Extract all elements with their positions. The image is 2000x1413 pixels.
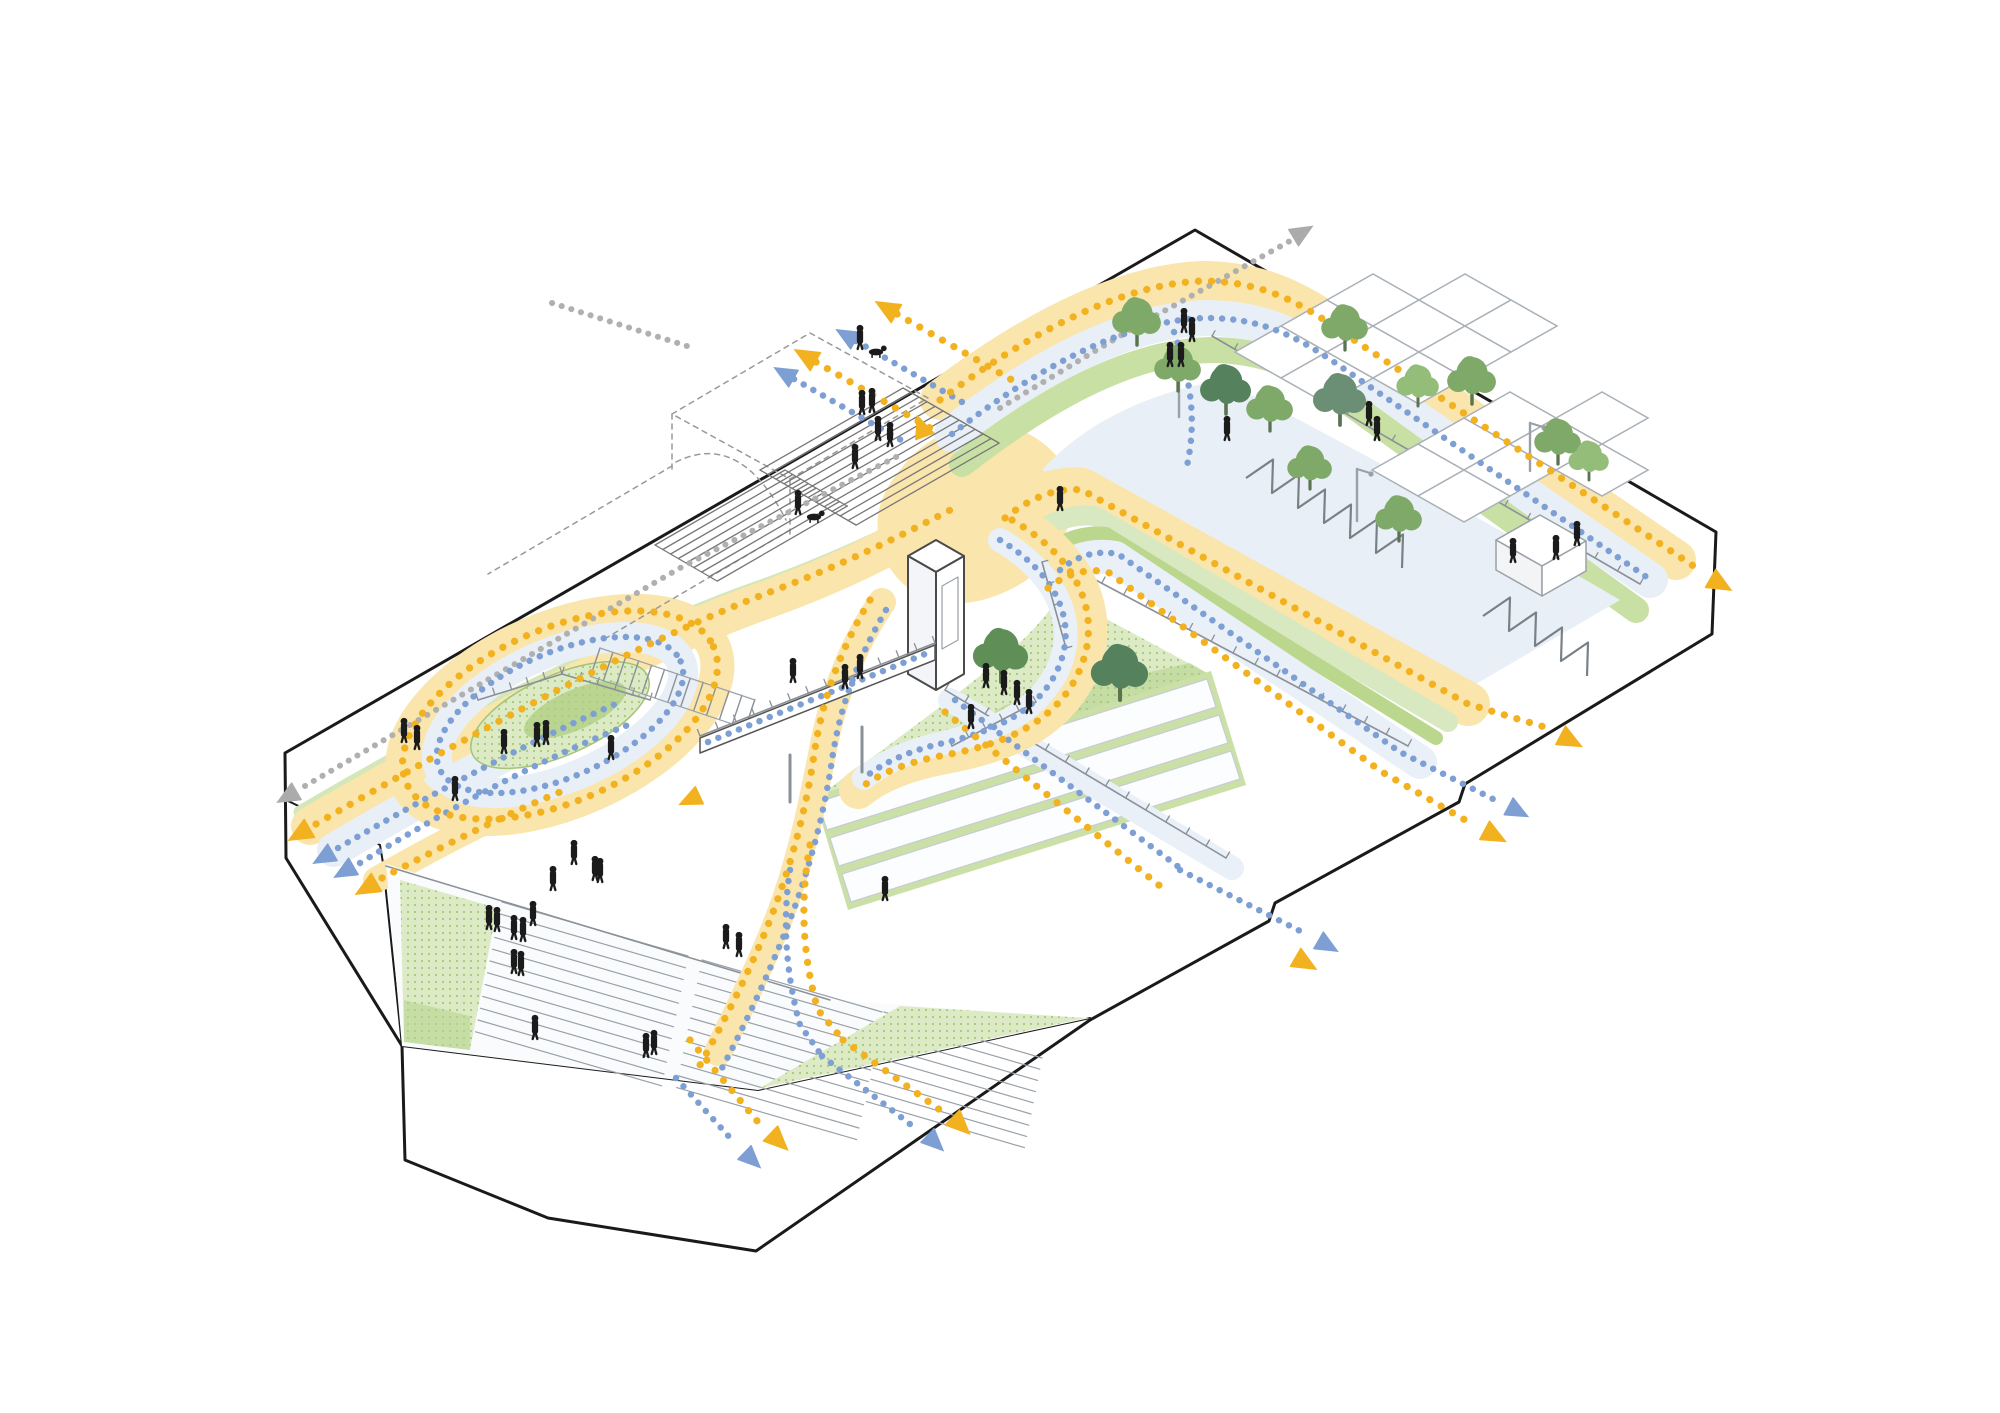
cycle-arrow-south-p3 <box>1313 931 1344 960</box>
ped-arrow-north-a <box>869 292 902 324</box>
elevator-tower-left-face <box>908 556 936 690</box>
ped-arrow-promenade-east <box>1555 725 1588 756</box>
cycle-arrow-north-a <box>830 320 861 349</box>
desire-line-gray-outside <box>552 303 690 347</box>
person <box>869 388 876 412</box>
cycle-arrow-east <box>1503 797 1534 826</box>
axonometric-circulation-diagram <box>0 0 2000 1413</box>
gray-exit-arrow-northeast <box>1288 217 1319 247</box>
cycle-arrow-north-b <box>768 358 799 387</box>
person <box>859 390 866 414</box>
person <box>857 325 864 349</box>
ped-arrow-south-p3 <box>1290 948 1323 980</box>
diagram-canvas <box>0 0 2000 1413</box>
ped-arrow-north-b <box>788 340 821 372</box>
ped-arrow-lower-east <box>1479 820 1512 851</box>
scene-root <box>271 217 1738 1251</box>
elevator-tower-right-face <box>936 556 964 690</box>
